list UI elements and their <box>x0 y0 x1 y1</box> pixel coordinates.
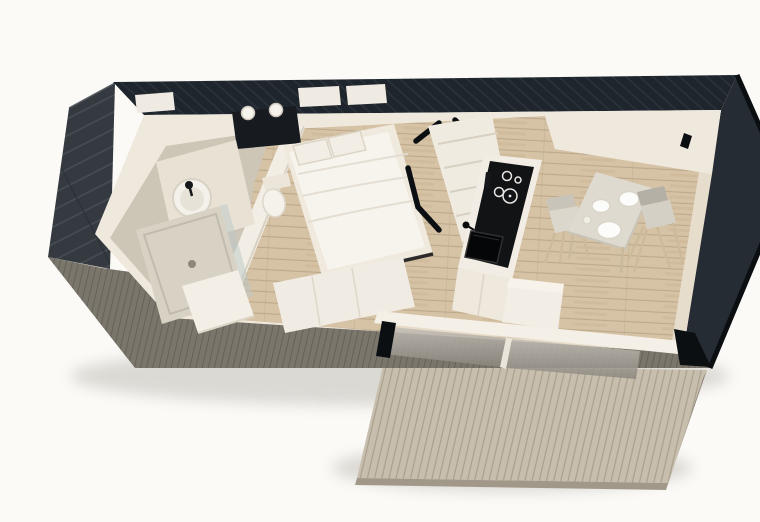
floor-plan-canvas: Front wood deck <box>40 16 760 506</box>
roof-window-cap-1 <box>135 92 175 113</box>
kitchen-sink <box>465 231 503 263</box>
roof-window-cap-2 <box>298 86 341 107</box>
deck-surface <box>357 366 707 483</box>
terrace-deck: Front wood deck <box>355 366 707 490</box>
table-cup <box>583 216 591 224</box>
plate-3 <box>597 222 621 239</box>
plate-2 <box>619 192 639 207</box>
mirror-sconce-2 <box>270 104 283 117</box>
shower-drain <box>188 260 196 268</box>
basin-inner <box>180 187 204 211</box>
floor-plan-render: 3D axonometric cutaway floor plan of a t… <box>40 16 760 506</box>
plate-1 <box>592 200 610 213</box>
roof-window-cap-3 <box>346 84 387 105</box>
burner-4-dot <box>509 195 512 198</box>
mirror-sconce-1 <box>242 107 255 120</box>
back-wall-top-band <box>113 75 737 115</box>
